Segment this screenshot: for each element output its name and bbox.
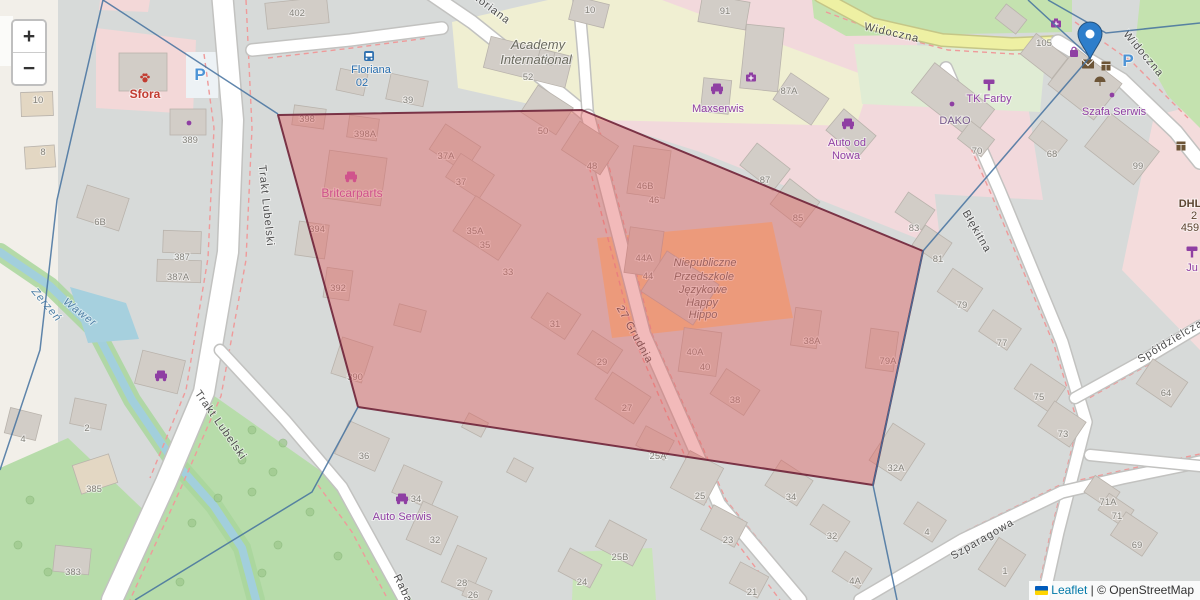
- housenumber-34: 34: [786, 492, 797, 503]
- housenumber-73: 73: [1058, 429, 1069, 440]
- housenumber-69: 69: [1132, 540, 1143, 551]
- housenumber-6b: 6B: [94, 217, 106, 228]
- attribution-separator: |: [1091, 583, 1094, 597]
- osm-attribution-link[interactable]: © OpenStreetMap: [1097, 583, 1194, 597]
- leaflet-attribution-link[interactable]: Leaflet: [1051, 583, 1087, 597]
- poi-label-auto-serwis: Auto Serwis: [373, 511, 432, 523]
- tree-icon: [334, 552, 342, 560]
- housenumber-24: 24: [577, 577, 588, 588]
- poi-label-2: 2: [1191, 210, 1197, 222]
- bus-icon: [364, 51, 374, 61]
- poi-label-floriana: Floriana: [351, 64, 392, 76]
- housenumber-64: 64: [1161, 388, 1172, 399]
- housenumber-387: 387: [174, 252, 190, 263]
- tree-icon: [274, 541, 282, 549]
- dot-icon: [1110, 93, 1115, 98]
- housenumber-71: 71: [1112, 511, 1123, 522]
- tree-icon: [248, 426, 256, 434]
- housenumber-87a: 87A: [781, 86, 799, 97]
- ukraine-flag-icon: [1035, 586, 1048, 595]
- poi-label-academy: Academy: [510, 37, 567, 52]
- housenumber-32: 32: [430, 535, 441, 546]
- housenumber-52: 52: [523, 72, 534, 83]
- tree-icon: [258, 569, 266, 577]
- tree-icon: [26, 496, 34, 504]
- attribution-bar: Leaflet | © OpenStreetMap: [1029, 581, 1200, 600]
- housenumber-28: 28: [457, 578, 468, 589]
- box-icon: [1177, 142, 1186, 151]
- housenumber-2: 2: [84, 423, 89, 434]
- poi-label-maxserwis: Maxserwis: [692, 103, 744, 115]
- housenumber-79: 79: [957, 300, 968, 311]
- housenumber-77: 77: [997, 338, 1008, 349]
- housenumber-68: 68: [1047, 149, 1058, 160]
- housenumber-10: 10: [585, 5, 596, 16]
- box-icon: [1102, 62, 1111, 71]
- housenumber-39: 39: [403, 95, 414, 106]
- poi-label-tk-farby: TK Farby: [966, 93, 1012, 105]
- housenumber-4: 4: [924, 527, 929, 538]
- housenumber-387a: 387A: [167, 272, 190, 283]
- housenumber-32a: 32A: [888, 463, 906, 474]
- poi-label-szafa-serwis: Szafa Serwis: [1082, 106, 1147, 118]
- housenumber-83: 83: [909, 223, 920, 234]
- housenumber-385: 385: [86, 484, 102, 495]
- housenumber-25b: 25B: [612, 552, 629, 563]
- building: [740, 24, 784, 92]
- tree-icon: [214, 494, 222, 502]
- housenumber-91: 91: [720, 6, 731, 17]
- housenumber-99: 99: [1133, 161, 1144, 172]
- housenumber-71a: 71A: [1100, 497, 1118, 508]
- tree-icon: [14, 541, 22, 549]
- housenumber-21: 21: [747, 587, 758, 598]
- zoom-control: + −: [11, 19, 47, 86]
- dot-icon: [950, 102, 955, 107]
- housenumber-75: 75: [1034, 392, 1045, 403]
- housenumber-4a: 4A: [849, 576, 861, 587]
- poi-label-ju: Ju: [1186, 262, 1198, 274]
- housenumber-1: 1: [1002, 566, 1007, 577]
- tree-icon: [44, 568, 52, 576]
- tree-icon: [176, 578, 184, 586]
- housenumber-34: 34: [411, 494, 422, 505]
- building: [119, 53, 167, 91]
- tree-icon: [248, 488, 256, 496]
- dot-icon: [187, 121, 192, 126]
- poi-label-sfora: Sfora: [130, 87, 161, 101]
- housenumber-4: 4: [20, 434, 25, 445]
- poi-label-p: P: [1122, 51, 1133, 70]
- poi-label-dako: DAKO: [939, 115, 971, 127]
- zoom-in-button[interactable]: +: [13, 21, 45, 53]
- housenumber-23: 23: [723, 535, 734, 546]
- housenumber-25: 25: [695, 491, 706, 502]
- poi-label-459: 459: [1181, 222, 1199, 234]
- map-canvas[interactable]: 40210838939108529187A105706899838179776B…: [0, 0, 1200, 600]
- poi-label-dhl: DHL: [1179, 198, 1200, 210]
- housenumber-26: 26: [468, 590, 479, 600]
- tree-icon: [306, 508, 314, 516]
- poi-label-international: International: [500, 52, 573, 67]
- housenumber-105: 105: [1036, 38, 1052, 49]
- housenumber-70: 70: [972, 146, 983, 157]
- housenumber-389: 389: [182, 135, 198, 146]
- zoom-out-button[interactable]: −: [13, 53, 45, 84]
- housenumber-8: 8: [40, 147, 45, 158]
- poi-label-nowa: Nowa: [832, 150, 861, 162]
- housenumber-81: 81: [933, 254, 944, 265]
- housenumber-32: 32: [827, 531, 838, 542]
- tree-icon: [279, 439, 287, 447]
- poi-label-02: 02: [356, 77, 368, 89]
- tree-icon: [188, 519, 196, 527]
- housenumber-10: 10: [33, 95, 44, 106]
- building: [163, 230, 202, 253]
- housenumber-36: 36: [359, 451, 370, 462]
- housenumber-383: 383: [65, 567, 81, 578]
- tree-icon: [269, 468, 277, 476]
- map[interactable]: 40210838939108529187A105706899838179776B…: [0, 0, 1200, 600]
- housenumber-402: 402: [289, 8, 305, 19]
- poi-label-auto-od: Auto od: [828, 137, 866, 149]
- poi-label-p: P: [194, 65, 205, 84]
